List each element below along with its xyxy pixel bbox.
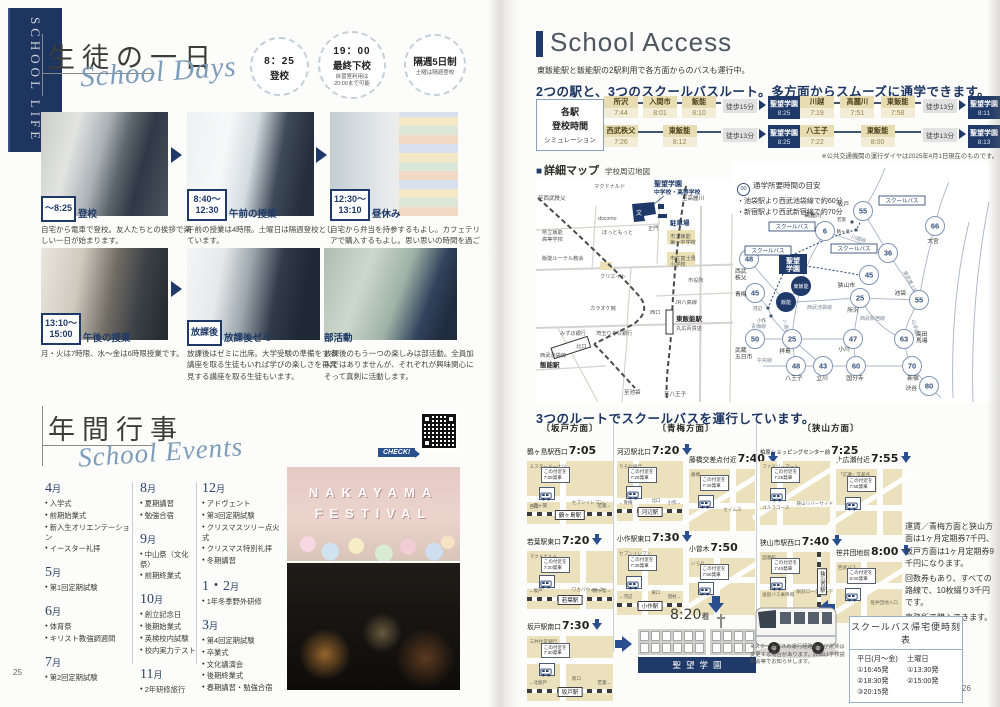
badge-time: 19：00 (333, 42, 370, 57)
railway-prev-station: ←北坂戸 (529, 680, 547, 686)
svg-text:狭山市: 狭山市 (838, 281, 856, 289)
minimap-label: セイムス (723, 507, 741, 513)
departure-note: この付近を7:50発車 (700, 564, 729, 580)
svg-text:60: 60 (852, 362, 860, 371)
event-item: 入学式 (45, 499, 135, 509)
svg-text:北口: 北口 (576, 342, 586, 350)
arrow-right-icon (959, 100, 966, 110)
svg-text:スクールバス: スクールバス (775, 224, 808, 231)
sim-line1: 各駅 (561, 106, 579, 120)
station-name: 八王子 (800, 125, 834, 137)
bus-stop-name: 坂戸駅南口 (527, 624, 561, 631)
station-time: 8:01 (643, 108, 677, 118)
event-month: 5月第1回定期試験 (45, 563, 135, 593)
svg-text:スクールバス: スクールバス (837, 246, 870, 253)
bus-stop-time: 7:50 (710, 541, 737, 554)
bus-stop-icon (539, 575, 555, 588)
svg-text:学園: 学園 (786, 264, 800, 273)
svg-text:西武新宿線: 西武新宿線 (860, 315, 885, 322)
bus-stop-icon (698, 582, 714, 595)
bus-stop: 小作駅東口7:30セブンイレブン東口この付近を7:30発車小作駅←河辺羽村→ (617, 528, 683, 615)
destination-time: 8:25 (778, 110, 791, 117)
event-month-label: 1・2月 (202, 575, 284, 595)
daily-card: 12:30～13:10昼休み自宅から弁当を持参するもよし。カフェテリアで購入する… (330, 112, 458, 216)
badge-arrival-time: 8：25 登校 (250, 37, 309, 96)
access-subtitle: 東飯能駅と飯能駅の2駅利用で各方面からのバスも運行中。 (537, 65, 749, 76)
svg-text:80: 80 (925, 382, 933, 391)
timetable-title: スクールバス帰宅便時刻表 (850, 617, 962, 650)
station-time: 8:12 (663, 137, 697, 147)
festival-line1: NAKAYAMA (287, 483, 460, 504)
svg-text:小作: 小作 (757, 317, 766, 324)
events-divider (132, 482, 133, 664)
station-time: 7:19 (800, 108, 834, 118)
route-station: 東飯能7:58 (881, 96, 915, 118)
badge-label: 隔週5日制 (413, 54, 456, 68)
minimap-label: 狭山リバーサイド (796, 501, 833, 507)
event-item: 後期始業式 (140, 622, 198, 632)
fare-line: 回数券もあり、すべての路線で、10枚綴り3千円です。 (905, 573, 998, 610)
svg-text:47: 47 (849, 335, 857, 344)
bus-group-title: 〔青梅方面〕 (617, 422, 755, 434)
svg-text:スクールバス: スクールバス (751, 248, 784, 255)
route-link (915, 102, 921, 104)
route-station: 東飯能8:12 (663, 125, 697, 147)
departure-note: この付近を7:20発車 (628, 467, 657, 483)
daily-card: 13:10～15:00午後の授業月・火は7時限、水～金は6時限授業です。 (41, 248, 168, 340)
event-item: 体育祭 (45, 622, 135, 632)
timetable-entry: ②18:30発 (857, 675, 907, 686)
departure-note: この付近を7:40発車 (700, 475, 729, 491)
building-windows (638, 629, 756, 655)
event-item: イースター礼拝 (45, 544, 135, 554)
departure-note: この付近を8:00発車 (847, 568, 876, 584)
bus-stop-head: 上広瀬付近7:55 (836, 449, 902, 467)
route-station: 東飯能8:00 (861, 125, 895, 147)
svg-text:ほっともっと: ほっともっと (602, 229, 633, 236)
station-name: 飯能 (682, 96, 716, 108)
bus-stop-name: 小曾木 (689, 546, 709, 553)
detail-map-header: ■詳細マップ学校周辺地図 (536, 161, 650, 179)
svg-text:青梅: 青梅 (735, 290, 747, 298)
station-label: 鶴ヶ島駅 (555, 510, 585, 520)
event-item: クリスマスツリー点火式 (202, 523, 284, 543)
event-item: 勉強合宿 (140, 511, 198, 521)
bus-stop-time: 7:20 (562, 534, 589, 547)
minimap-label: 東口 (651, 590, 660, 596)
bus-stop-time: 7:05 (569, 444, 596, 457)
bus-stop-minimap: 藤橋セイムスこの付近を7:40発車 (689, 469, 755, 531)
arrow-right-icon (171, 147, 182, 163)
bus-stop-minimap: ミスタードーナツセブンイレブン西口この付近を7:05発車鶴ヶ島駅←霞ヶ関若葉→ (527, 461, 613, 524)
event-month: 8月夏期講習勉強合宿 (140, 479, 198, 521)
event-item: アドヴェント (202, 499, 284, 509)
cross-icon (716, 614, 726, 628)
bus-stop-minimap: マクドナルドワカバウォークこの付近を7:20発車若葉駅←坂戸鶴ヶ島→ (527, 551, 613, 609)
arrow-down-icon (708, 596, 724, 613)
svg-text:みずほ銀行: みずほ銀行 (560, 329, 586, 337)
bus-stop-head: 若葉駅東口7:20 (527, 531, 613, 549)
bus-stop-head: 小作駅東口7:30 (617, 528, 683, 546)
event-item: 創立記念日 (140, 610, 198, 620)
route-station: 高麗川7:51 (840, 96, 874, 118)
svg-text:50: 50 (751, 335, 759, 344)
photo-club-activity (324, 248, 457, 340)
svg-text:駐車場: 駐車場 (670, 218, 690, 227)
svg-text:丸広百貨店: 丸広百貨店 (676, 324, 702, 332)
bus-stop: 上広瀬付近7:55「広瀬」交差点この付近を7:55発車 (836, 449, 902, 535)
activity-description: 午前の授業は4時限。土曜日は隔週登校としています。 (187, 224, 339, 247)
svg-text:池袋: 池袋 (894, 289, 906, 297)
check-ribbon: CHECK! (378, 448, 415, 457)
station-label: 河辺駅 (638, 507, 663, 517)
activity-label: 放課後ゼミ (224, 330, 272, 344)
page-number-right: 26 (962, 684, 971, 693)
bus-stop-time: 7:30 (562, 619, 589, 632)
station-time: 7:51 (840, 108, 874, 118)
departure-note: この付近を7:30発車 (628, 555, 657, 571)
svg-text:正門: 正門 (648, 225, 658, 232)
event-month-label: 7月 (45, 653, 135, 671)
daily-title-rule (42, 34, 43, 96)
station-name: 東飯能 (881, 96, 915, 108)
svg-text:45: 45 (865, 271, 873, 280)
timetable-saturday-label: 土曜日 (907, 653, 957, 664)
badge-note: 土曜は隔週登校 (416, 70, 455, 77)
timetable-weekday-label: 平日(月～金) (857, 653, 907, 664)
railway-prev-station: ←霞ヶ関 (529, 503, 547, 509)
timetable-entry: ③20:15発 (857, 686, 907, 697)
station-label: 小作駅 (638, 601, 663, 611)
bus-stop-name: 笹井団地前 (836, 550, 870, 557)
station-label: 若葉駅 (558, 595, 583, 605)
departure-note: この付近を7:40発車 (771, 558, 800, 574)
activity-label: 部活動 (324, 330, 353, 344)
svg-text:立川: 立川 (816, 374, 828, 382)
event-month-label: 10月 (140, 590, 198, 608)
badge-label: 登校 (270, 68, 289, 82)
event-month: 6月体育祭キリスト教強調週間 (45, 602, 135, 644)
svg-text:国分寺: 国分寺 (846, 374, 864, 382)
svg-text:八王子: 八王子 (785, 375, 803, 382)
bus-stop-icon (626, 486, 642, 499)
svg-text:25: 25 (856, 294, 864, 303)
detail-map-title: 詳細マップ (544, 165, 599, 177)
event-item: 1年冬季野外研修 (202, 597, 284, 607)
bus-stop-head: 河辺駅北口7:20 (617, 441, 683, 459)
fare-info: 運賃／青梅方面と狭山方面は1ヶ月定期券7千円、坂戸方面は1ヶ月定期券9千円になり… (905, 521, 998, 626)
bus-stop: 笹井団地前8:00西武バス笹井団地入口この付近を8:00発車 (836, 542, 902, 623)
legend-line: ・池袋駅より西武池袋線で約60分 (737, 196, 843, 207)
svg-text:大宮: 大宮 (927, 237, 939, 245)
bus-stop: 藤橋交差点付近7:40藤橋セイムスこの付近を7:40発車 (689, 449, 755, 531)
sim-line3: シミュレーション (544, 134, 596, 144)
bus-stop-head: 小曾木7:50 (689, 538, 755, 556)
station-name: 川越 (800, 96, 834, 108)
train-route: 所沢7:44入間市8:01飯能8:10徒歩15分聖望学園8:25 (604, 96, 800, 125)
bus-stop-icon (539, 487, 555, 500)
svg-text:小学校: 小学校 (670, 260, 686, 268)
departure-note: この付近を7:30発車 (541, 643, 570, 659)
svg-text:48: 48 (745, 255, 753, 264)
svg-text:五日市: 五日市 (735, 353, 753, 361)
badge-time: 8：25 (264, 52, 295, 67)
svg-text:埼玉りそな銀行: 埼玉りそな銀行 (596, 329, 632, 337)
badge-biweekly: 隔週5日制 土曜は隔週登校 (404, 34, 466, 96)
station-name: 東飯能 (861, 125, 895, 137)
time-box: 8:40～12:30 (187, 189, 227, 221)
bus-stop-time: 8:00 (871, 545, 898, 558)
svg-text:鶴ヶ島: 鶴ヶ島 (837, 228, 851, 235)
bus-stop-name: 狭山市駅西口 (760, 540, 801, 547)
bus-stop-head: 藤橋交差点付近7:40 (689, 449, 755, 467)
svg-text:西武: 西武 (735, 267, 747, 275)
event-item: 冬期講習 (202, 556, 284, 566)
bus-divider (613, 422, 614, 652)
qr-code (422, 414, 456, 448)
bus-stop-name: 鶴ヶ島駅西口 (527, 449, 568, 456)
svg-text:43: 43 (819, 362, 827, 371)
railway-next-station: 小作→ (668, 500, 682, 506)
timetable-entry: ①13:30発 (907, 664, 957, 675)
events-divider (196, 482, 197, 664)
timetable-weekday-column: 平日(月～金)①16:45発②18:30発③20:15発 (857, 653, 907, 698)
wide-map-legend: 00通学所要時間の目安 ・池袋駅より西武池袋線で約60分 ・新宿駅より西武新宿線… (737, 180, 843, 218)
route-link (638, 131, 663, 133)
activity-description: 放課後はゼミに出席。大学受験の準備をする講座を取る生徒もいれば学びの楽しさを再発… (187, 348, 339, 382)
svg-text:聖望学園: 聖望学園 (654, 179, 682, 188)
page-gutter-shadow (487, 0, 519, 707)
svg-text:25: 25 (788, 335, 796, 344)
bus-route-group: 〔青梅方面〕河辺駅北口7:20りそな銀行北口この付近を7:20発車河辺駅←青梅小… (617, 422, 755, 615)
svg-text:拝島: 拝島 (779, 347, 791, 355)
event-item: 第1回定期試験 (45, 583, 135, 593)
return-bus-timetable: スクールバス帰宅便時刻表 平日(月～金)①16:45発②18:30発③20:15… (849, 616, 963, 703)
station-name: 西武秩父 (604, 125, 638, 137)
station-time: 8:10 (682, 108, 716, 118)
bus-stop-icon (845, 588, 861, 601)
legend-title-row: 00通学所要時間の目安 (737, 180, 843, 196)
svg-text:秩父: 秩父 (735, 274, 747, 282)
section-square-icon: ■ (536, 166, 542, 177)
activity-label: 登校 (78, 206, 97, 220)
svg-text:中学校・高等学校: 中学校・高等学校 (654, 188, 701, 196)
bus-stop-head: 狭山市駅西口7:40 (760, 532, 830, 550)
bus-stop-minimap: 三井住友銀行南口この付近を7:30発車坂戸駅←北坂戸若葉→ (527, 636, 613, 701)
minimap-label: 南口 (572, 676, 581, 682)
svg-text:市立富士見: 市立富士見 (670, 254, 696, 262)
station-time: 8:00 (861, 137, 895, 147)
activity-label: 午後の授業 (83, 330, 131, 344)
svg-text:所沢: 所沢 (847, 306, 859, 314)
daily-card: 放課後放課後ゼミ放課後はゼミに出席。大学受験の準備をする講座を取る生徒もいれば学… (187, 248, 320, 340)
event-month: 4月入学式前期始業式新入生オリエンテーションイースター礼拝 (45, 479, 135, 554)
bus-stop-head: 坂戸駅南口7:30 (527, 616, 613, 634)
event-month-label: 6月 (45, 602, 135, 620)
station-name: 所沢 (604, 96, 638, 108)
arrow-right-icon (959, 129, 966, 139)
route-station: 西武秩父7:26 (604, 125, 638, 147)
detail-map: 文至西武秩父マクドナルド聖望学園中学校・高等学校至高麗川docomo駐車場正門ほ… (536, 178, 755, 402)
svg-text:高田: 高田 (916, 330, 928, 338)
route-station: 八王子7:22 (800, 125, 834, 147)
event-item: 夏期講習 (140, 499, 198, 509)
brochure-spread: { "page_left": { "banner": "SCHOOL LIFE"… (0, 0, 1000, 707)
svg-text:西武池袋線: 西武池袋線 (807, 304, 832, 311)
arrow-right-icon (759, 129, 766, 139)
train-route: 西武秩父7:26東飯能8:12徒歩13分聖望学園8:25 (604, 125, 800, 154)
svg-text:クリエイト: クリエイト (600, 273, 626, 280)
svg-text:東飯能: 東飯能 (793, 283, 808, 290)
svg-text:小川: 小川 (838, 345, 850, 353)
station-label: 坂戸駅 (558, 687, 583, 697)
bus-group-title: 〔狭山方面〕 (760, 422, 902, 434)
station-name: 入間市 (643, 96, 677, 108)
event-month: 10月創立記念日後期始業式英検校内試験校内実力テスト (140, 590, 198, 655)
bus-stop-name: 藤橋交差点付近 (689, 457, 737, 464)
walk-label: 徒歩13分 (923, 99, 957, 113)
timetable-entry: ①16:45発 (857, 664, 907, 675)
svg-text:55: 55 (859, 207, 867, 216)
bus-group-column: 柏原ショッピングセンター前7:25ファミリーマート狭山リバーサイドゴルフコースこ… (760, 434, 830, 623)
event-item: 英検校内試験 (140, 634, 198, 644)
svg-text:docomo: docomo (598, 216, 617, 222)
time-box: 放課後 (187, 320, 222, 346)
event-month-label: 12月 (202, 479, 284, 497)
bus-stop-time: 7:55 (871, 452, 898, 465)
walk-label: 徒歩13分 (923, 128, 957, 142)
event-item: 新入生オリエンテーション (45, 523, 135, 543)
access-title-bar (536, 31, 543, 57)
station-time: 7:44 (604, 108, 638, 118)
svg-text:至高麗川: 至高麗川 (682, 194, 704, 202)
event-item: 前期始業式 (45, 511, 135, 521)
events-column: 8月夏期講習勉強合宿9月中山祭（文化祭）前期終業式10月創立記念日後期始業式英検… (140, 470, 198, 694)
page-number-left: 25 (13, 668, 22, 677)
departure-note: この付近を7:20発車 (541, 557, 570, 573)
bus-group-column: 河辺駅北口7:20りそな銀行北口この付近を7:20発車河辺駅←青梅小作→小作駅東… (617, 434, 683, 615)
svg-text:高等学校: 高等学校 (542, 235, 563, 243)
route-station: 飯能8:10 (682, 96, 716, 118)
festival-line2: FESTIVAL (287, 504, 460, 525)
svg-text:武蔵: 武蔵 (735, 346, 747, 354)
fare-line: 運賃／青梅方面と狭山方面は1ヶ月定期券7千円、坂戸方面は1ヶ月定期券9千円になり… (905, 521, 998, 571)
event-item: 後期終業式 (202, 671, 284, 681)
event-item: 2年研修旅行 (140, 685, 198, 695)
minutes-circle-icon: 00 (737, 183, 750, 196)
event-item: 文化講演会 (202, 660, 284, 670)
bus-stop-head: 鶴ヶ島駅西口7:05 (527, 441, 613, 459)
event-month-label: 8月 (140, 479, 198, 497)
badge-final-leave: 19：00 最終下校 自習室利用は 20:00まで可能 (318, 31, 386, 99)
timetable-entry: ②15:00発 (907, 675, 957, 686)
access-title: School Access (550, 27, 732, 58)
route-station: 川越7:19 (800, 96, 834, 118)
bus-stop: 坂戸駅南口7:30三井住友銀行南口この付近を7:30発車坂戸駅←北坂戸若葉→ (527, 616, 613, 701)
arrow-right-icon (171, 281, 182, 297)
walk-label: 徒歩15分 (723, 99, 757, 113)
activity-description: 放課後のもう一つの楽しみは部活動。全員加入ではありませんが、それぞれが興味関心に… (324, 348, 474, 382)
bus-route-group: 〔狭山方面〕柏原ショッピングセンター前7:25ファミリーマート狭山リバーサイドゴ… (760, 422, 902, 623)
daily-card: 部活動放課後のもう一つの楽しみは部活動。全員加入ではありませんが、それぞれが興味… (324, 248, 457, 340)
walk-label: 徒歩13分 (723, 128, 757, 142)
svg-text:文: 文 (636, 209, 642, 217)
station-label: 狭山市駅 (817, 568, 827, 596)
bus-stop-name: 小作駅東口 (617, 536, 651, 543)
svg-text:至西武秩父: 至西武秩父 (538, 194, 566, 202)
events-calendar: 4月入学式前期始業式新入生オリエンテーションイースター礼拝5月第1回定期試験6月… (45, 470, 285, 670)
station-name: 高麗川 (840, 96, 874, 108)
departure-note: この付近を7:55発車 (847, 476, 876, 492)
school-building-illustration: 聖望学園 (638, 629, 756, 673)
event-month: 9月中山祭（文化祭）前期終業式 (140, 530, 198, 582)
daily-card: 8:40～12:30午前の授業午前の授業は4時限。土曜日は隔週登校としています。 (187, 112, 314, 216)
time-box: 13:10～15:00 (41, 313, 81, 345)
school-name-band: 聖望学園 (638, 657, 756, 673)
bus-group-column: 鶴ヶ島駅西口7:05ミスタードーナツセブンイレブン西口この付近を7:05発車鶴ヶ… (527, 434, 613, 701)
station-time: 7:58 (881, 108, 915, 118)
svg-text:36: 36 (884, 249, 892, 258)
events-title-rule (42, 406, 43, 466)
bus-stop-icon (539, 663, 555, 676)
events-column: 12月アドヴェント第3回定期試験クリスマスツリー点火式クリスマス特別礼拝冬期講習… (202, 470, 284, 693)
bus-stop-time: 7:20 (652, 444, 679, 457)
bus-stop-minimap: りそな銀行北口この付近を7:20発車河辺駅←青梅小作→ (617, 461, 683, 521)
daily-card: ～8:25登校自宅から電車で登校。友人たちとの挨拶で楽しい一日が始まります。 (41, 112, 168, 216)
svg-text:66: 66 (931, 222, 939, 231)
event-item: キリスト教強調週間 (45, 634, 135, 644)
arrow-down-icon (901, 452, 911, 463)
svg-text:市立飯能: 市立飯能 (670, 232, 691, 240)
svg-text:渋谷: 渋谷 (905, 384, 917, 392)
event-month: 11月2年研修旅行 (140, 665, 198, 695)
bus-stop-icon (698, 495, 714, 508)
bus-stop: 柏原ショッピングセンター前7:25ファミリーマート狭山リバーサイドゴルフコースこ… (760, 441, 830, 525)
svg-text:飯能駅: 飯能駅 (539, 360, 560, 369)
photo-nakayama-festival: NAKAYAMA FESTIVAL (287, 467, 460, 561)
time-box: 12:30～13:10 (330, 189, 370, 221)
svg-text:6: 6 (823, 227, 827, 236)
railway-next-station: 鶴ヶ島→ (593, 588, 611, 594)
minimap-label: 駅前ロータリー下 (796, 589, 833, 595)
railway-prev-station: ←青梅 (619, 500, 633, 506)
route-station: 所沢7:44 (604, 96, 638, 118)
event-month-label: 3月 (202, 616, 284, 634)
event-month-label: 9月 (140, 530, 198, 548)
bus-stop-name: 若葉駅東口 (527, 539, 561, 546)
bus-stop-name: 河辺駅北口 (617, 449, 651, 456)
svg-text:55: 55 (915, 296, 923, 305)
svg-text:青梅線: 青梅線 (751, 323, 766, 330)
svg-text:県立飯能: 県立飯能 (542, 228, 563, 236)
bus-stop-minimap: 「広瀬」交差点この付近を7:55発車 (836, 469, 902, 535)
event-month: 3月第4回定期試験卒業式文化講演会後期終業式春期講習・勉強合宿 (202, 616, 284, 693)
minimap-label: 笹井団地入口 (870, 600, 898, 606)
destination-box: 聖望学園8:25 (768, 96, 800, 119)
activity-label: 昼休み (372, 206, 401, 220)
event-item: 校内実力テスト (140, 646, 198, 656)
event-month: 1・2月1年冬季野外研修 (202, 575, 284, 607)
route-link (716, 102, 721, 104)
brochure-spread-background: SCHOOL LIFE 生徒の一日 School Days 8：25 登校 19… (0, 0, 1000, 707)
svg-text:西口: 西口 (650, 309, 660, 316)
sim-box: 各駅 登校時間 シミュレーション (536, 99, 604, 151)
event-month-label: 4月 (45, 479, 135, 497)
svg-text:48: 48 (792, 362, 800, 371)
railway-prev-station: ←河辺 (619, 594, 633, 600)
bus-stop-icon (770, 488, 786, 501)
activity-label: 午前の授業 (229, 206, 277, 220)
